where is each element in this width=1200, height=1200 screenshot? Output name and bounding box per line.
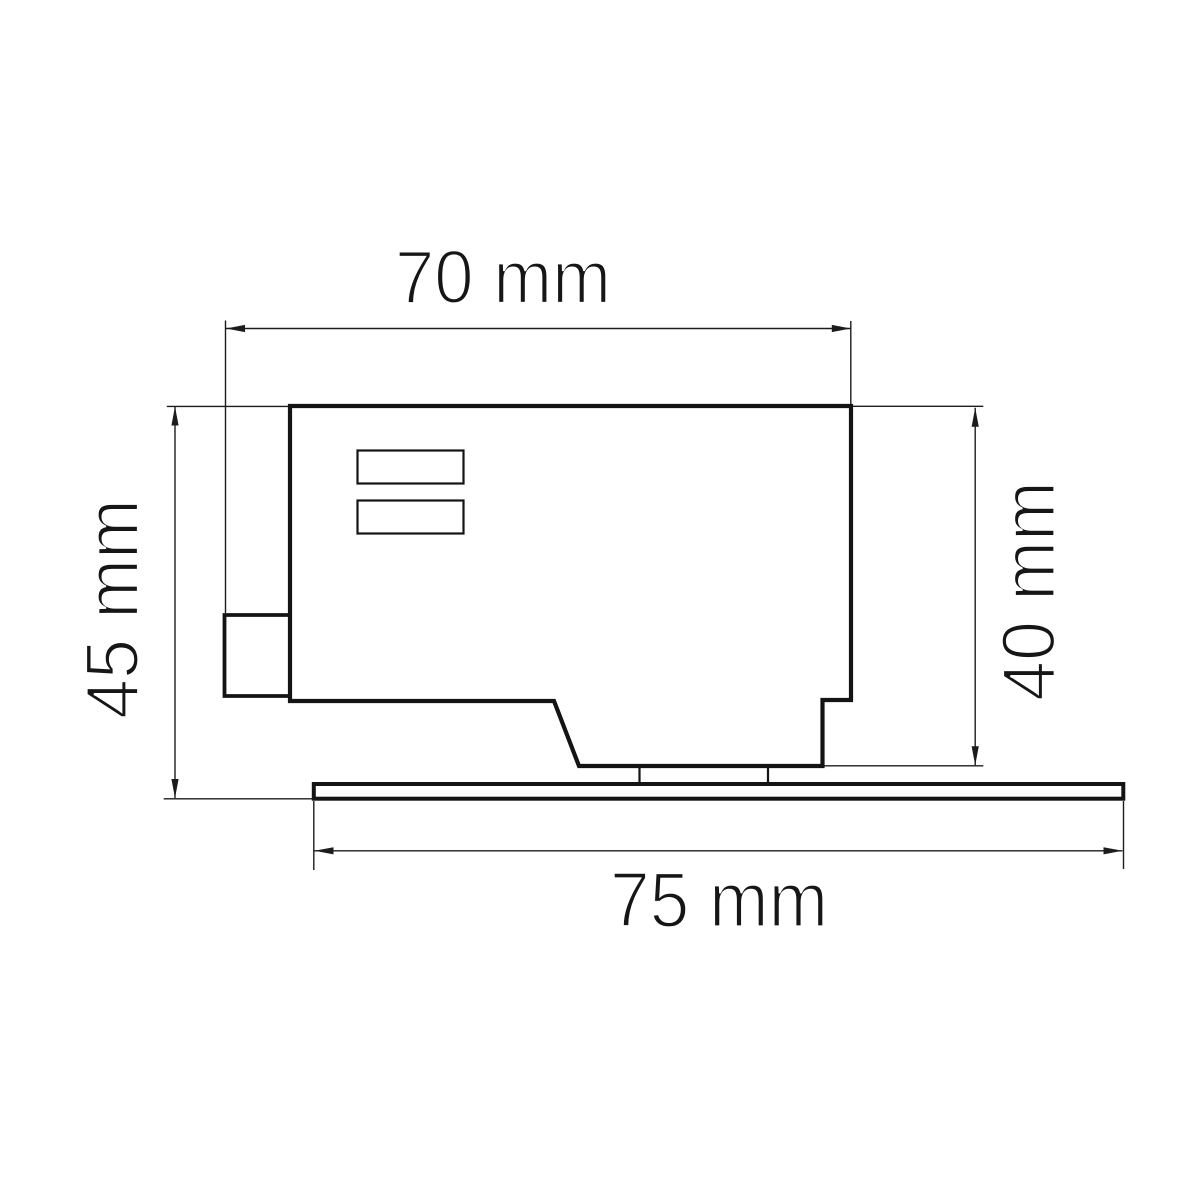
svg-text:70 mm: 70 mm bbox=[395, 235, 611, 319]
svg-text:45 mm: 45 mm bbox=[70, 499, 154, 719]
svg-text:40 mm: 40 mm bbox=[987, 481, 1071, 701]
svg-text:75 mm: 75 mm bbox=[610, 856, 828, 944]
